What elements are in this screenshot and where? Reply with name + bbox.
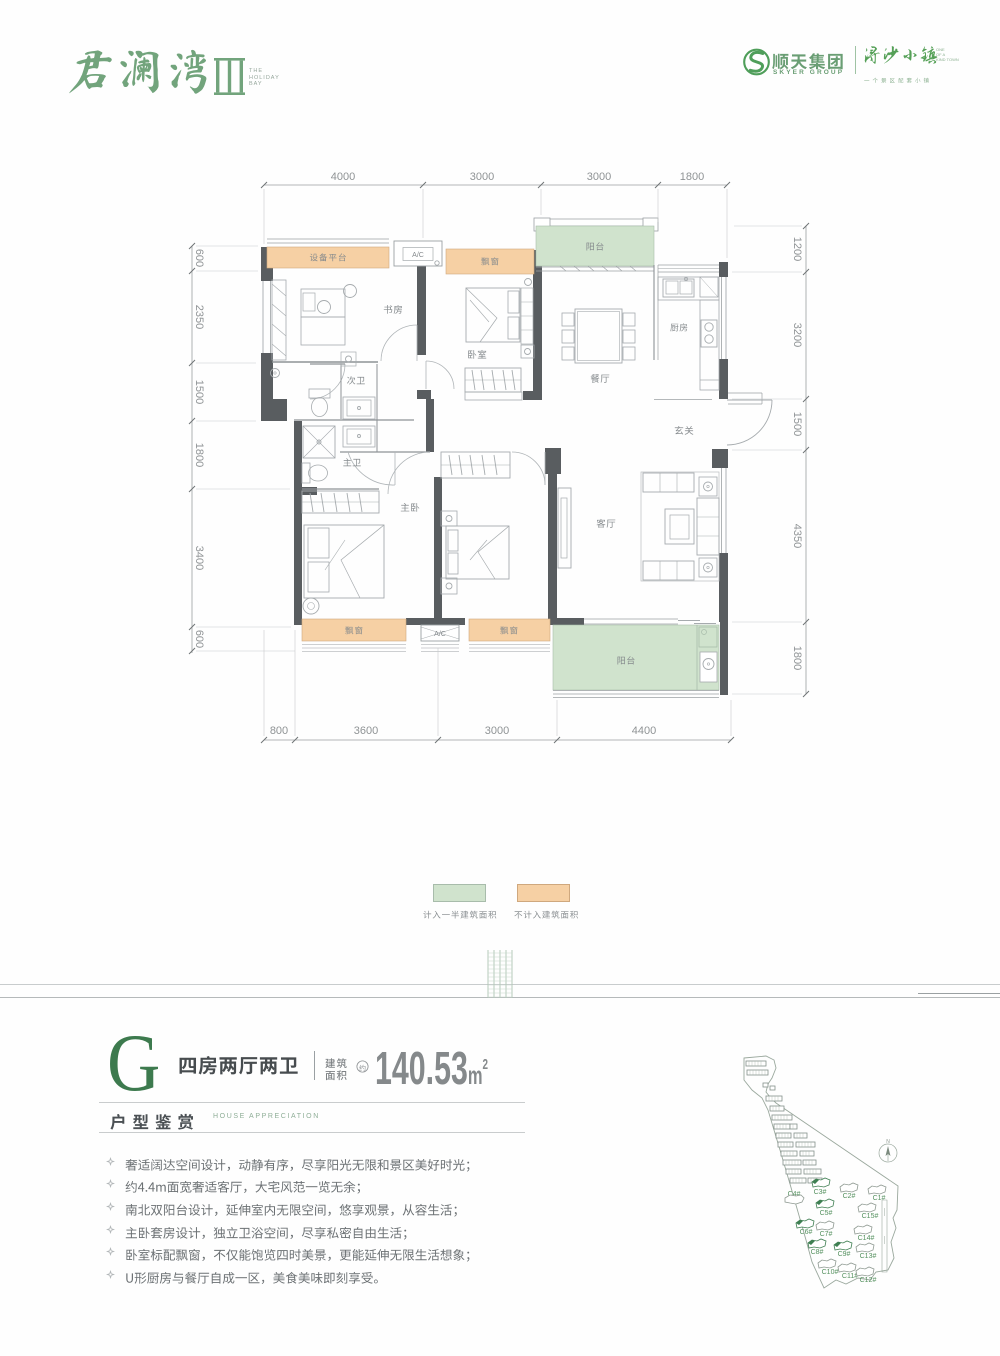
svg-text:C5#: C5# xyxy=(820,1210,833,1217)
svg-text:C9#: C9# xyxy=(838,1251,851,1258)
svg-text:C11#: C11# xyxy=(842,1273,858,1280)
svg-text:C10#: C10# xyxy=(822,1269,839,1276)
svg-text:C1#: C1# xyxy=(873,1195,886,1202)
svg-text:C2#: C2# xyxy=(843,1193,856,1200)
svg-text:C14#: C14# xyxy=(858,1235,875,1242)
svg-text:C15#: C15# xyxy=(862,1213,879,1220)
svg-text:N: N xyxy=(886,1139,890,1145)
svg-text:C7#: C7# xyxy=(820,1231,833,1238)
svg-text:C8#: C8# xyxy=(811,1249,824,1256)
svg-text:C13#: C13# xyxy=(860,1253,877,1260)
svg-text:C6#: C6# xyxy=(800,1229,813,1236)
svg-text:C12#: C12# xyxy=(860,1277,877,1284)
svg-text:C3#: C3# xyxy=(814,1189,827,1196)
